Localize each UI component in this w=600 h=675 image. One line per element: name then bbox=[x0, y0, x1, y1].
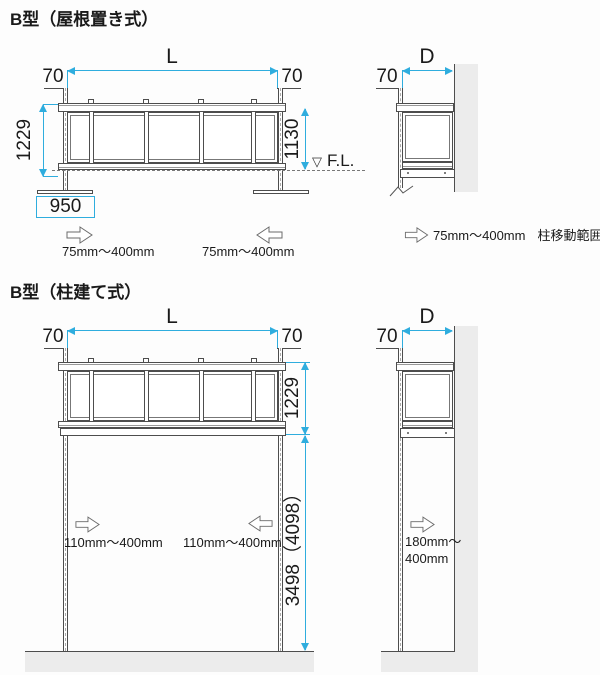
arrowhead-icon bbox=[445, 67, 453, 75]
s1-front-total-height-dimension bbox=[39, 104, 47, 177]
s1-front-range-right: 75mm～400mm bbox=[202, 245, 294, 259]
s1-side-wall bbox=[454, 64, 478, 192]
dimension-line bbox=[43, 105, 44, 176]
s1-side-depth-dimension bbox=[402, 67, 453, 75]
s1-side-range-note: 75mm～400mm 柱移動範囲 bbox=[433, 229, 600, 243]
arrowhead-icon bbox=[301, 643, 309, 651]
floor-level-line bbox=[52, 170, 365, 171]
s1-front-total-height: 1229 bbox=[15, 110, 35, 170]
extension-line bbox=[402, 330, 403, 348]
s2-side-depth-dimension bbox=[402, 327, 453, 335]
dimension-line bbox=[68, 70, 277, 71]
break-line-icon bbox=[389, 184, 415, 198]
s1-front-top-rail bbox=[58, 103, 286, 112]
s1-front-right-base bbox=[253, 190, 309, 194]
s2-front-range-left: 110mm～400mm bbox=[64, 536, 163, 550]
s1-front-range-left: 75mm～400mm bbox=[62, 245, 154, 259]
dimension-line bbox=[305, 436, 306, 650]
fastener-dot bbox=[407, 172, 409, 174]
arrowhead-icon bbox=[67, 327, 75, 335]
s2-side-range-line1: 180mm～ bbox=[405, 535, 461, 549]
s2-side-offset: 70 bbox=[374, 327, 400, 348]
panel-post bbox=[144, 371, 149, 421]
s2-side-wall bbox=[454, 326, 478, 672]
s1-front-left-base bbox=[37, 190, 93, 194]
s1-front-offset-left: 70 bbox=[40, 67, 66, 88]
arrowhead-icon bbox=[402, 67, 410, 75]
s1-side-offset: 70 bbox=[374, 67, 400, 88]
move-range-arrow-right-icon bbox=[66, 226, 93, 244]
s1-front-fl-label: F.L. bbox=[327, 152, 354, 171]
dimension-line bbox=[305, 109, 306, 169]
ground-fill bbox=[381, 652, 477, 672]
technical-drawing: B型（屋根置き式） L 70 70 1229 1130 ▽ F.L. bbox=[0, 0, 600, 675]
move-range-arrow-right-icon bbox=[404, 227, 429, 243]
s1-front-base-width-dimension: 950 bbox=[36, 196, 95, 218]
panel-post bbox=[251, 112, 256, 163]
s2-front-post-height: 3498（4098） bbox=[284, 460, 304, 630]
panel-post bbox=[199, 112, 204, 163]
s1-front-length-dimension bbox=[67, 67, 278, 75]
dimension-line bbox=[68, 330, 277, 331]
arrowhead-icon bbox=[445, 327, 453, 335]
s2-front-floor-beam bbox=[60, 428, 286, 436]
extension-line bbox=[67, 70, 68, 88]
s1-side-panel-inner bbox=[405, 115, 450, 159]
panel-post bbox=[199, 371, 204, 421]
s1-front-panel-inner bbox=[70, 115, 275, 160]
move-range-arrow-right-icon bbox=[410, 516, 435, 533]
s1-side-depth-label: D bbox=[407, 45, 447, 68]
extension-line bbox=[402, 70, 403, 88]
move-range-arrow-right-icon bbox=[75, 516, 100, 533]
panel-post bbox=[89, 371, 94, 421]
move-range-arrow-left-icon bbox=[256, 226, 283, 244]
s2-side-top-rail bbox=[396, 362, 454, 371]
s1-front-offset-right: 70 bbox=[279, 67, 305, 88]
extension-line bbox=[67, 330, 68, 348]
s1-side-bottom-rail bbox=[402, 162, 453, 169]
ground-fill bbox=[25, 652, 314, 672]
s2-side-depth-label: D bbox=[407, 305, 447, 328]
arrowhead-icon bbox=[402, 327, 410, 335]
panel-post bbox=[89, 112, 94, 163]
fastener-dot bbox=[445, 432, 447, 434]
s2-side-range-line2: 400mm bbox=[405, 552, 448, 566]
section-roof-title: B型（屋根置き式） bbox=[10, 11, 158, 30]
arrowhead-icon bbox=[301, 427, 309, 435]
s2-side-panel-inner bbox=[405, 374, 450, 418]
extension-line bbox=[277, 330, 278, 348]
move-range-arrow-left-icon bbox=[248, 515, 273, 532]
s1-front-length-label: L bbox=[152, 45, 192, 68]
floor-level-marker-icon: ▽ bbox=[312, 155, 322, 169]
s2-front-offset-right: 70 bbox=[279, 327, 305, 348]
arrowhead-icon bbox=[39, 104, 47, 112]
s2-front-offset-left: 70 bbox=[40, 327, 66, 348]
s1-front-base-width: 950 bbox=[50, 196, 82, 218]
fastener-dot bbox=[407, 432, 409, 434]
panel-post bbox=[144, 112, 149, 163]
s1-front-bottom-rail bbox=[58, 163, 286, 170]
arrowhead-icon bbox=[39, 169, 47, 177]
s2-front-panel-inner bbox=[70, 374, 275, 418]
extension-line bbox=[277, 70, 278, 88]
dimension-line bbox=[305, 363, 306, 434]
s1-front-floor-height: 1130 bbox=[283, 109, 303, 169]
fastener-dot bbox=[444, 172, 446, 174]
s1-side-top-rail bbox=[396, 103, 454, 112]
s1-side-range-value: 75mm～400mm bbox=[433, 229, 525, 243]
s2-front-range-right: 110mm～400mm bbox=[183, 536, 282, 550]
s2-front-length-label: L bbox=[152, 305, 192, 328]
s2-front-bottom-rail bbox=[58, 421, 286, 428]
s1-side-range-suffix: 柱移動範囲 bbox=[537, 229, 600, 243]
arrowhead-icon bbox=[67, 67, 75, 75]
s2-front-length-dimension bbox=[67, 327, 278, 335]
s2-side-bottom-rail bbox=[402, 421, 453, 428]
panel-post bbox=[251, 371, 256, 421]
arrowhead-icon bbox=[301, 435, 309, 443]
s2-front-rail-height: 1229 bbox=[283, 368, 303, 428]
s2-front-top-rail bbox=[58, 362, 286, 371]
section-post-title: B型（柱建て式） bbox=[10, 284, 141, 303]
